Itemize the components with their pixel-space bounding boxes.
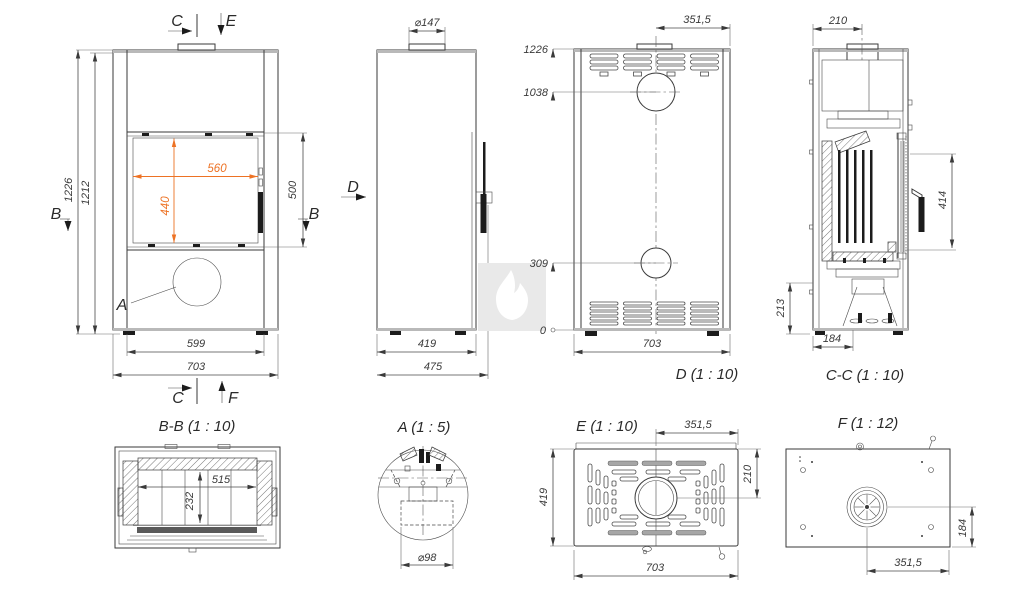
dim-intake-to-back: 184 bbox=[823, 333, 841, 345]
dim-e-flue-to-back: 210 bbox=[742, 464, 754, 484]
foot bbox=[123, 331, 135, 335]
flue-collar-rear bbox=[637, 44, 672, 49]
door-handle-side bbox=[481, 194, 487, 233]
left-wall-brick bbox=[123, 461, 138, 525]
section-bb-title: B-B (1 : 10) bbox=[159, 418, 236, 435]
front-view: 1226 1212 560 440 500 599 703 C E B B A … bbox=[51, 13, 320, 407]
door-glass-band bbox=[137, 527, 257, 533]
dim-fan-offset: 351,5 bbox=[894, 557, 922, 569]
drawing-sheet: 1226 1212 560 440 500 599 703 C E B B A … bbox=[0, 0, 1024, 593]
dim-e-depth: 419 bbox=[538, 488, 550, 506]
mark-c-top: C bbox=[171, 13, 183, 30]
side-view: ⌀147 419 475 D bbox=[341, 17, 492, 379]
mark-d: D bbox=[347, 179, 359, 196]
rear-view-d: 1226 1038 309 0 351,5 703 D (1 : 10) bbox=[524, 14, 739, 383]
dim-glass-height-section: 414 bbox=[937, 191, 949, 209]
foot bbox=[893, 331, 903, 335]
mark-b-right: B bbox=[309, 206, 320, 223]
detail-a-title: A (1 : 5) bbox=[397, 419, 451, 436]
flue-collar-side bbox=[409, 44, 445, 50]
dim-body-height: 1212 bbox=[80, 181, 92, 205]
back-wall-brick bbox=[138, 458, 257, 470]
mark-c-bottom: C bbox=[172, 390, 184, 407]
dim-level-intake: 309 bbox=[530, 258, 548, 270]
mark-b-left: B bbox=[51, 206, 62, 223]
dim-door-height: 500 bbox=[287, 180, 299, 199]
bottom-view-f: F (1 : 12) 184 351,5 bbox=[786, 415, 976, 575]
pull-ring bbox=[719, 554, 725, 560]
detail-a-view: A (1 : 5) ⌀98 bbox=[378, 419, 468, 569]
flue-collar-front bbox=[178, 44, 215, 50]
foot bbox=[390, 331, 401, 335]
dim-rear-width: 703 bbox=[643, 338, 662, 350]
dim-body-depth: 419 bbox=[418, 338, 436, 350]
dim-level-flue: 1038 bbox=[524, 87, 549, 99]
dim-flue-diameter: ⌀147 bbox=[415, 17, 441, 29]
dim-base-height: 213 bbox=[775, 298, 787, 318]
section-cc-view: 210 414 213 184 C-C (1 : 10) bbox=[775, 15, 956, 384]
brand-watermark bbox=[478, 263, 546, 331]
dim-e-width: 703 bbox=[646, 562, 665, 574]
dim-level-zero: 0 bbox=[540, 325, 547, 337]
foot bbox=[256, 331, 268, 335]
pull-ring-bottom bbox=[931, 436, 936, 441]
dim-total-width: 703 bbox=[187, 361, 206, 373]
mark-f: F bbox=[228, 390, 239, 407]
handle-rod bbox=[483, 142, 486, 194]
dim-flue-offset: 351,5 bbox=[683, 14, 711, 26]
dim-chamber-width: 515 bbox=[212, 474, 231, 486]
mark-a: A bbox=[116, 297, 128, 314]
dim-base-width: 599 bbox=[187, 338, 205, 350]
dim-hole-diameter: ⌀98 bbox=[418, 552, 438, 564]
flue-collar-section bbox=[847, 44, 878, 49]
detail-a-dimensions: ⌀98 bbox=[401, 527, 453, 569]
bottom-f-title: F (1 : 12) bbox=[838, 415, 899, 432]
dim-total-height: 1226 bbox=[63, 177, 75, 202]
dim-fan-to-front: 184 bbox=[957, 519, 969, 537]
section-bb-view: B-B (1 : 10) 515 232 bbox=[115, 418, 280, 552]
dim-level-top: 1226 bbox=[524, 44, 549, 56]
dim-glass-height: 440 bbox=[160, 196, 172, 216]
top-view-e: E (1 : 10) 351,5 210 419 703 bbox=[538, 418, 761, 580]
dim-glass-width: 560 bbox=[207, 163, 227, 175]
rear-view-title: D (1 : 10) bbox=[676, 366, 739, 383]
technical-drawing-canvas: 1226 1212 560 440 500 599 703 C E B B A … bbox=[0, 0, 1024, 593]
intake-hole-outline bbox=[401, 501, 453, 525]
dim-total-depth: 475 bbox=[424, 361, 443, 373]
dim-chamber-depth: 232 bbox=[184, 492, 196, 511]
foot bbox=[455, 331, 466, 335]
door-latch bbox=[189, 548, 196, 552]
section-cc-title: C-C (1 : 10) bbox=[826, 367, 904, 384]
door-handle-section bbox=[919, 197, 925, 232]
mark-e: E bbox=[226, 13, 237, 30]
foot bbox=[707, 331, 719, 336]
firebrick-back-wall bbox=[822, 141, 832, 261]
top-e-title: E (1 : 10) bbox=[576, 418, 638, 435]
right-wall-brick bbox=[257, 461, 272, 525]
foot bbox=[585, 331, 597, 336]
dim-e-flue-offset: 351,5 bbox=[684, 419, 712, 431]
dim-flue-to-back: 210 bbox=[828, 15, 848, 27]
door-handle-front bbox=[258, 192, 263, 233]
